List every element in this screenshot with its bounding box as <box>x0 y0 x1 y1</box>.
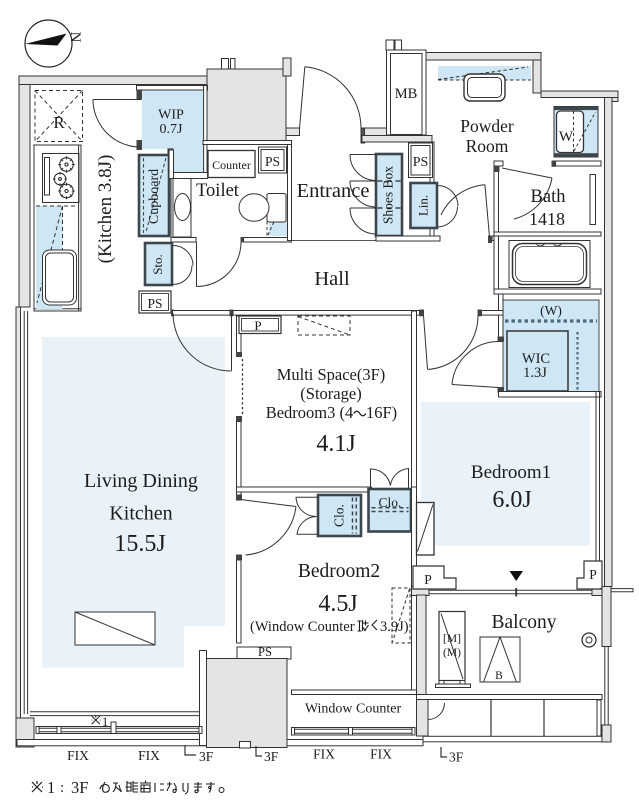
svg-text:Kitchen: Kitchen <box>109 503 172 525</box>
svg-text:1.3J: 1.3J <box>523 365 547 381</box>
svg-text:PS: PS <box>265 154 280 169</box>
svg-text:3F: 3F <box>199 749 214 764</box>
svg-text:Window Counter: Window Counter <box>305 702 402 717</box>
svg-text:Sto.: Sto. <box>150 254 165 275</box>
svg-text:FIX: FIX <box>138 748 160 763</box>
svg-text:3F: 3F <box>264 749 279 764</box>
svg-text:(Storage): (Storage) <box>300 384 361 403</box>
svg-text:Bedroom2: Bedroom2 <box>298 561 380 582</box>
svg-text:FIX: FIX <box>67 748 89 763</box>
svg-text:B: B <box>495 670 503 682</box>
svg-text:Entrance: Entrance <box>297 180 370 202</box>
svg-text:R: R <box>53 113 65 132</box>
svg-text:Shoes Box: Shoes Box <box>381 166 396 224</box>
svg-text:Balcony: Balcony <box>492 612 557 633</box>
svg-text:16F): 16F) <box>366 403 397 422</box>
svg-text:Clo.: Clo. <box>379 495 402 510</box>
svg-text:1: 1 <box>47 778 55 797</box>
svg-text:(W): (W) <box>540 303 562 318</box>
svg-text:4.1J: 4.1J <box>316 431 355 457</box>
svg-text:Bath: Bath <box>531 187 566 207</box>
svg-text:MB: MB <box>395 86 418 102</box>
svg-text:3F: 3F <box>71 778 88 797</box>
svg-text:P: P <box>424 572 432 587</box>
svg-text:Bedroom1: Bedroom1 <box>471 462 551 483</box>
svg-text:Lin.: Lin. <box>416 195 431 216</box>
svg-text:Multi Space(3F): Multi Space(3F) <box>277 365 386 384</box>
svg-text:3.9J): 3.9J) <box>380 619 409 635</box>
svg-text:4.5J: 4.5J <box>318 591 357 617</box>
svg-text:PS: PS <box>147 296 162 311</box>
svg-text:Clo.: Clo. <box>332 504 347 527</box>
svg-text:N: N <box>67 32 83 43</box>
svg-text:Bedroom3 (4: Bedroom3 (4 <box>266 403 354 422</box>
svg-text:3F: 3F <box>449 750 464 765</box>
svg-text:WIP: WIP <box>158 108 184 123</box>
svg-text:P: P <box>589 567 597 582</box>
svg-text:0.7J: 0.7J <box>160 122 184 137</box>
svg-text:PS: PS <box>413 155 429 170</box>
svg-text:[M]: [M] <box>443 633 461 645</box>
svg-text:Hall: Hall <box>314 268 350 290</box>
svg-text:15.5J: 15.5J <box>114 531 165 557</box>
svg-text:Counter: Counter <box>212 158 251 172</box>
svg-text:Powder: Powder <box>460 116 514 136</box>
svg-text::: : <box>60 780 64 796</box>
svg-text:FIX: FIX <box>370 747 392 762</box>
svg-text:1: 1 <box>102 715 108 729</box>
svg-text:Room: Room <box>466 136 509 156</box>
svg-text:(Kitchen 3.8J): (Kitchen 3.8J) <box>95 155 116 264</box>
svg-text:P: P <box>254 318 261 333</box>
svg-text:PS: PS <box>258 645 272 659</box>
svg-text:1418: 1418 <box>529 209 565 229</box>
svg-text:Living Dining: Living Dining <box>84 470 198 492</box>
svg-text:6.0J: 6.0J <box>492 487 531 513</box>
svg-text:(Window Counter: (Window Counter <box>250 619 355 635</box>
svg-text:Toilet: Toilet <box>196 181 240 201</box>
svg-text:Cupboard: Cupboard <box>147 169 162 224</box>
svg-text:(M): (M) <box>443 647 461 659</box>
svg-text:W: W <box>559 129 574 145</box>
svg-text:FIX: FIX <box>313 747 335 762</box>
